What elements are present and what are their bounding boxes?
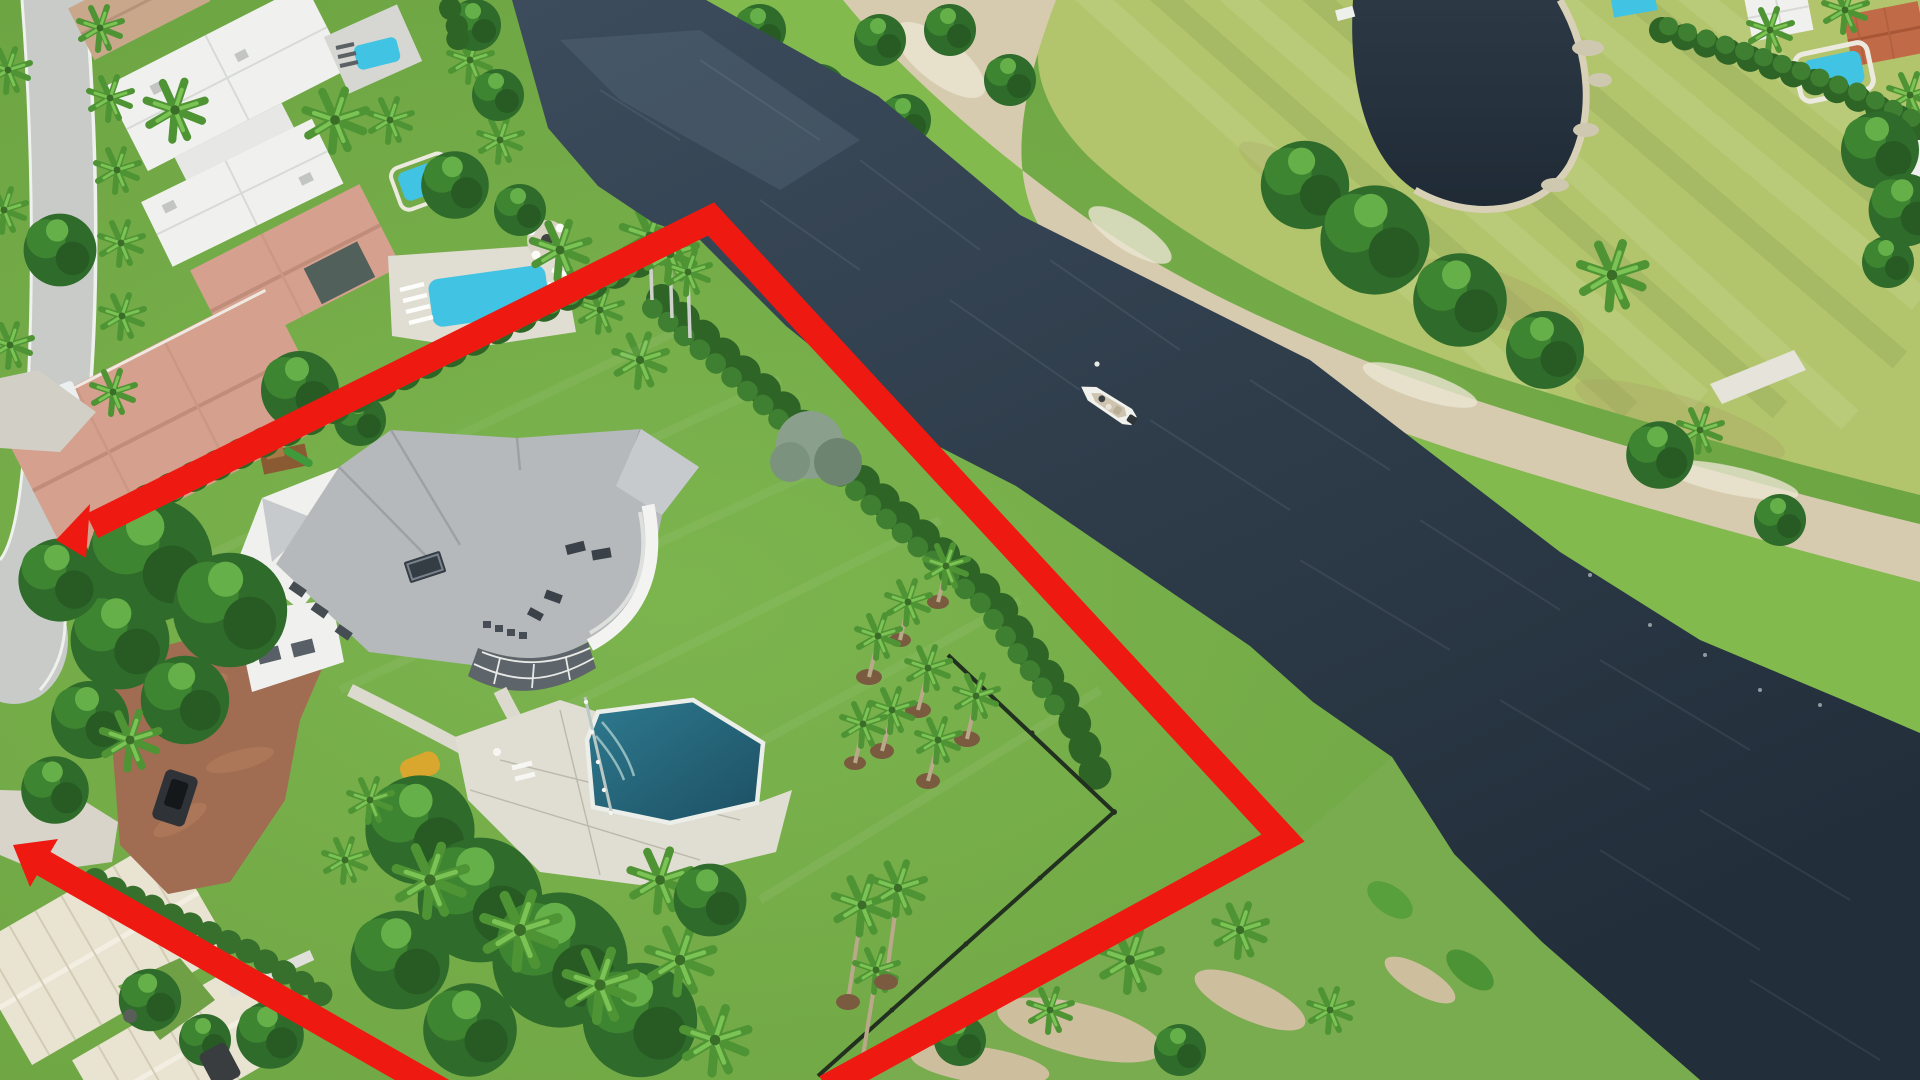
hedge-h1 — [445, 8, 462, 40]
aerial-photo — [0, 0, 1920, 1080]
aerial-photo-canvas — [0, 0, 1920, 1080]
garden-statue — [493, 748, 501, 756]
water-debris — [1094, 361, 1099, 366]
